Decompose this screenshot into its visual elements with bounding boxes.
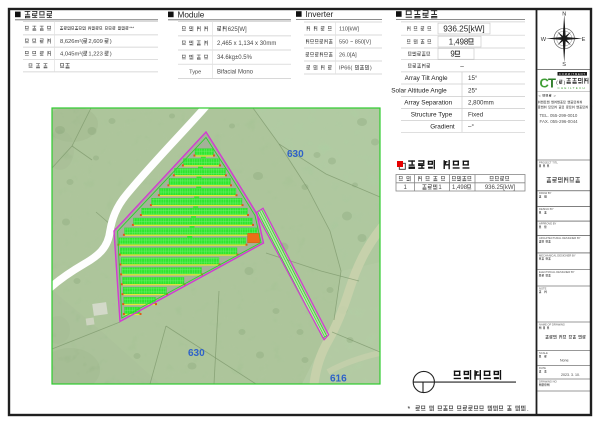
svg-text:2,465 x 1,134 x 30mm: 2,465 x 1,134 x 30mm xyxy=(217,41,276,47)
svg-text:9: 9 xyxy=(450,50,454,59)
svg-text:1,498: 1,498 xyxy=(449,37,469,46)
svg-text:4,045m²(: 4,045m²( xyxy=(60,51,83,57)
svg-text:936.25[kW]: 936.25[kW] xyxy=(485,185,516,191)
svg-text:NOTE: NOTE xyxy=(539,286,547,290)
svg-text:SCALE: SCALE xyxy=(539,351,548,355)
svg-text:IP66(: IP66( xyxy=(339,65,353,71)
svg-text:T: T xyxy=(548,76,556,91)
svg-text:Inverter: Inverter xyxy=(306,10,334,19)
svg-text:Type: Type xyxy=(189,69,201,75)
svg-text:): ) xyxy=(370,65,372,71)
svg-text:): ) xyxy=(110,51,112,57)
svg-text:2,609: 2,609 xyxy=(88,39,103,45)
svg-text:NAME OF DRAWING: NAME OF DRAWING xyxy=(539,322,565,326)
svg-text:Array Tilt Angle: Array Tilt Angle xyxy=(405,75,448,82)
svg-text:25°: 25° xyxy=(468,87,478,94)
svg-text:Fixed: Fixed xyxy=(468,112,484,119)
svg-text:Structure Type: Structure Type xyxy=(411,112,453,119)
svg-text:N: N xyxy=(562,11,566,17)
svg-text:*: * xyxy=(408,406,411,413)
svg-text:Gradient: Gradient xyxy=(430,124,455,131)
svg-text:Bifacial Mono: Bifacial Mono xyxy=(217,70,254,76)
svg-text:630: 630 xyxy=(287,149,304,160)
svg-text:1,223: 1,223 xyxy=(88,51,103,57)
svg-text:34.6kg±0.5%: 34.6kg±0.5% xyxy=(217,55,253,61)
svg-text:Module: Module xyxy=(178,10,205,19)
svg-text:Array Separation: Array Separation xyxy=(404,100,452,107)
svg-text:2,800mm: 2,800mm xyxy=(468,100,494,107)
svg-text:DRAWING NO: DRAWING NO xyxy=(539,379,557,383)
svg-text:W: W xyxy=(541,37,547,43)
svg-text:DATE: DATE xyxy=(539,366,546,370)
svg-text:CHEILTECH: CHEILTECH xyxy=(558,86,586,90)
svg-text:550 ~ 850[V]: 550 ~ 850[V] xyxy=(339,39,371,45)
svg-text:936.25[kW]: 936.25[kW] xyxy=(443,24,484,33)
svg-text:8,626m²(: 8,626m²( xyxy=(60,39,83,45)
svg-text:): ) xyxy=(110,39,112,45)
svg-text:COMMITMENT: COMMITMENT xyxy=(559,72,585,76)
svg-text:PROJECT TITL: PROJECT TITL xyxy=(539,160,558,164)
svg-text:625[W]: 625[W] xyxy=(228,27,247,33)
svg-text:–°: –° xyxy=(468,124,474,131)
svg-text:DESIGN BY: DESIGN BY xyxy=(539,207,554,211)
svg-text:E: E xyxy=(582,37,586,43)
svg-text:ARCHITECTURAL DESIGNER BY: ARCHITECTURAL DESIGNER BY xyxy=(539,236,581,240)
svg-text:APPROVE BY: APPROVE BY xyxy=(539,222,557,226)
svg-text:None: None xyxy=(560,359,569,363)
svg-text:DRAW BY: DRAW BY xyxy=(539,191,552,195)
svg-text:1,498: 1,498 xyxy=(452,185,468,191)
svg-text:616: 616 xyxy=(330,374,347,385)
svg-text:***: *** xyxy=(129,26,134,31)
svg-text:110[kW]: 110[kW] xyxy=(339,26,360,32)
svg-text:15°: 15° xyxy=(468,75,478,82)
svg-text:Solar Altitude Angle: Solar Altitude Angle xyxy=(391,87,447,94)
svg-text:26.0[A]: 26.0[A] xyxy=(339,52,357,58)
svg-text:630: 630 xyxy=(188,348,205,359)
svg-text:S: S xyxy=(562,62,566,68)
svg-text:TEL. 055-299-0010: TEL. 055-299-0010 xyxy=(540,113,578,118)
svg-text:MECHANICAL DESIGNER BY: MECHANICAL DESIGNER BY xyxy=(539,253,576,257)
svg-text:2023. 3. 10.: 2023. 3. 10. xyxy=(561,373,580,377)
svg-text:–: – xyxy=(460,63,464,70)
svg-text:FAX. 055-296-0044: FAX. 055-296-0044 xyxy=(540,119,579,124)
svg-text:ELECTRICAL DESIGNER BY: ELECTRICAL DESIGNER BY xyxy=(539,270,575,274)
